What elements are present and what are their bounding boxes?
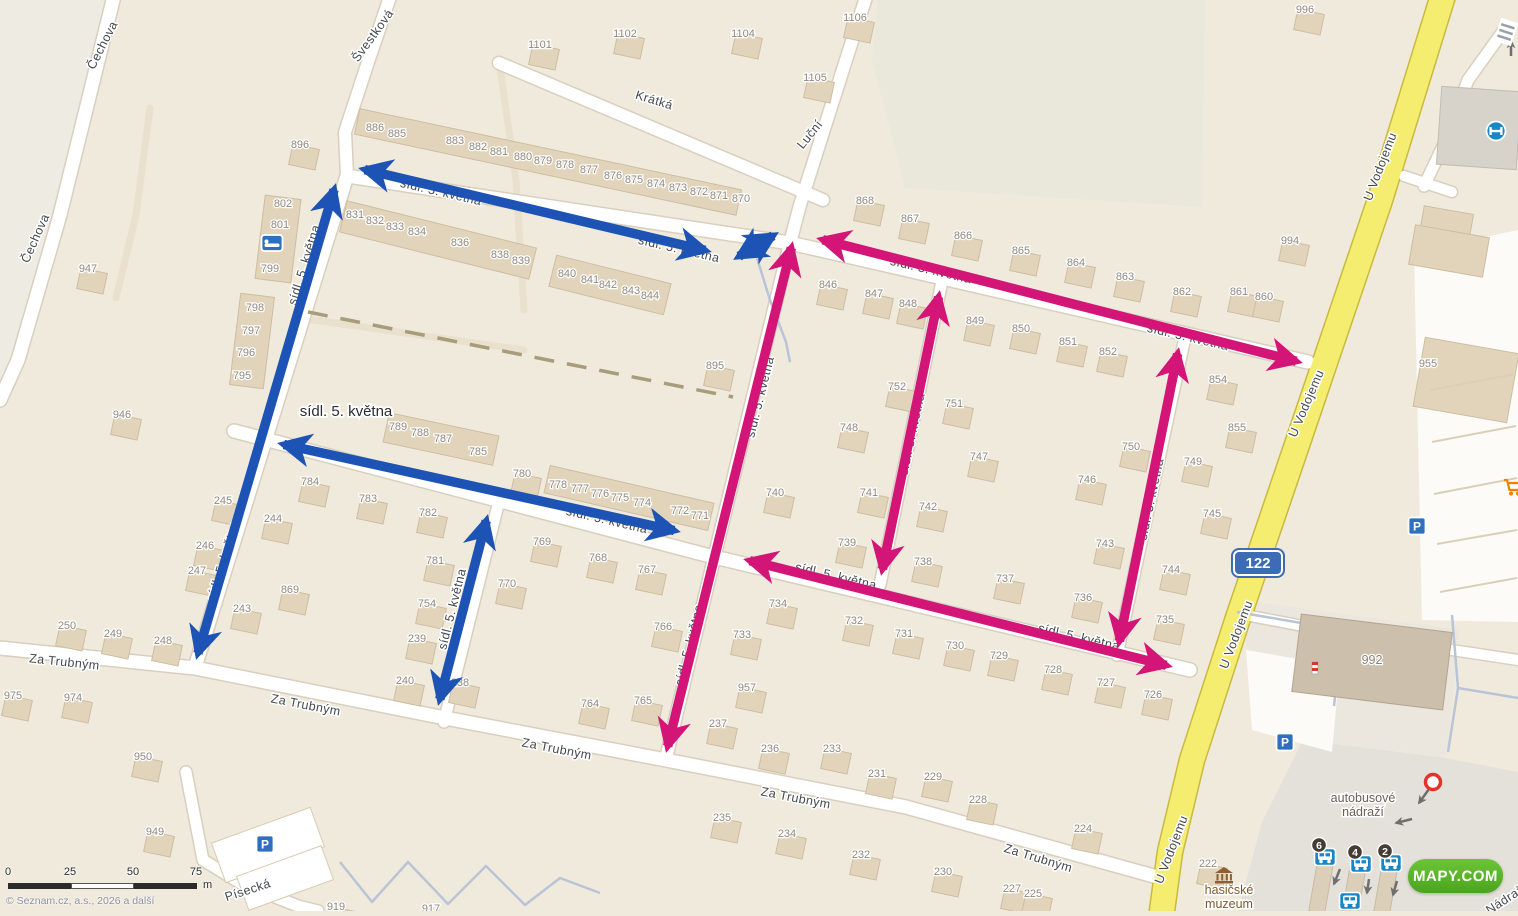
platform-number: 6	[1316, 840, 1322, 852]
house-number: 851	[1059, 336, 1077, 348]
house-number: 243	[233, 603, 251, 615]
house-number: 832	[366, 215, 384, 227]
house-number: 734	[769, 598, 787, 610]
house-number: 744	[1162, 564, 1180, 576]
house-number: 919	[327, 901, 345, 911]
house-number: 831	[346, 209, 364, 221]
house-number: 741	[860, 487, 878, 499]
house-number: 229	[924, 771, 942, 783]
sport-weight	[1500, 127, 1502, 135]
house-number: 1106	[843, 12, 867, 24]
house-number: 250	[58, 620, 76, 632]
house-number: 227	[1003, 883, 1021, 895]
house-number: 767	[638, 564, 656, 576]
house-number: 855	[1228, 422, 1246, 434]
parking-icon[interactable]: P	[1409, 518, 1426, 535]
house-number: 732	[845, 615, 863, 627]
house-number: 955	[1419, 358, 1437, 370]
scale-unit: m	[203, 879, 212, 891]
house-number: 842	[599, 279, 617, 291]
area-label: muzeum	[1205, 897, 1253, 911]
area-lot-east	[1414, 230, 1518, 622]
area-label: nádraží	[1342, 805, 1384, 819]
bus-window	[1326, 853, 1331, 856]
bus-wheel	[1385, 866, 1389, 870]
house-number: 882	[469, 141, 487, 153]
parking-icon[interactable]: P	[257, 836, 274, 853]
house-number: 771	[691, 510, 709, 522]
house-number: 764	[581, 698, 599, 710]
house-number: 864	[1067, 257, 1085, 269]
house-number: 996	[1296, 4, 1314, 16]
house-number: 975	[4, 690, 22, 702]
house-number: 246	[196, 540, 214, 552]
chimney-stripe	[1312, 668, 1318, 671]
house-number: 751	[945, 398, 963, 410]
house-number: 848	[899, 298, 917, 310]
house-number: 239	[408, 633, 426, 645]
house-number: 780	[513, 468, 531, 480]
house-number: 224	[1074, 823, 1092, 835]
house-number: 846	[819, 279, 837, 291]
house-number: 730	[946, 640, 964, 652]
museum-column	[1230, 874, 1232, 881]
area-label: autobusové	[1331, 791, 1396, 805]
house-number: 785	[469, 446, 487, 458]
house-number: 836	[451, 237, 469, 249]
chimney-stripe	[1312, 662, 1318, 665]
house-number: 852	[1099, 346, 1117, 358]
house-number: 237	[709, 718, 727, 730]
bus-window	[1345, 897, 1350, 900]
museum-base	[1215, 881, 1233, 884]
house-number: 868	[856, 195, 874, 207]
house-number: 736	[1074, 592, 1092, 604]
museum-column	[1217, 874, 1219, 881]
cart-wheel	[1509, 492, 1513, 496]
copyright-attribution[interactable]: © Seznam.cz, a.s., 2026 a další	[6, 895, 154, 907]
house-number: 235	[713, 812, 731, 824]
scale-segment	[134, 883, 197, 889]
area-label: hasičské	[1205, 883, 1254, 897]
museum-column	[1221, 874, 1223, 881]
house-number: 743	[1096, 538, 1114, 550]
sport-weight	[1489, 127, 1491, 135]
house-number: 782	[419, 507, 437, 519]
bus-window	[1386, 859, 1391, 862]
house-number: 249	[104, 628, 122, 640]
house-number: 731	[895, 628, 913, 640]
house-number: 244	[264, 513, 282, 525]
parking-letter: P	[261, 838, 269, 852]
house-number: 238	[451, 677, 469, 689]
house-number: 796	[237, 347, 255, 359]
house-number: 735	[1156, 614, 1174, 626]
house-number: 863	[1116, 271, 1134, 283]
house-number: 770	[498, 578, 516, 590]
house-number: 895	[706, 360, 724, 372]
house-number: 748	[840, 422, 858, 434]
house-number: 222	[1199, 858, 1217, 870]
house-number: 783	[359, 493, 377, 505]
house-number: 1102	[613, 28, 637, 40]
house-number: 739	[838, 537, 856, 549]
platform-number: 2	[1382, 846, 1388, 858]
bus-stop-icon[interactable]	[1340, 893, 1361, 910]
house-number: 833	[386, 221, 404, 233]
chimney-icon[interactable]	[1312, 662, 1318, 674]
house-number: 754	[418, 598, 436, 610]
house-number: 854	[1209, 374, 1227, 386]
house-number: 752	[888, 381, 906, 393]
house-number: 872	[690, 186, 708, 198]
house-number: 1104	[731, 28, 755, 40]
house-number: 768	[589, 552, 607, 564]
house-number: 950	[134, 751, 152, 763]
house-number: 838	[491, 249, 509, 261]
house-number: 248	[154, 635, 172, 647]
house-number: 871	[710, 190, 728, 202]
road-number-badge: 122	[1233, 550, 1283, 576]
scale-segment	[71, 883, 134, 889]
house-number: 839	[512, 255, 530, 267]
house-number: 1105	[803, 72, 827, 84]
house-number: 750	[1122, 441, 1140, 453]
house-number: 877	[580, 164, 598, 176]
house-number: 843	[622, 285, 640, 297]
house-number: 775	[611, 492, 629, 504]
house-number: 886	[366, 122, 384, 134]
bus-wheel	[1319, 860, 1323, 864]
house-number: 957	[738, 682, 756, 694]
house-number: 749	[1184, 456, 1202, 468]
house-number: 994	[1281, 235, 1299, 247]
house-number: 874	[647, 178, 665, 190]
house-number: 772	[671, 505, 689, 517]
house-number: 742	[919, 501, 937, 513]
scale-tick: 50	[127, 866, 139, 878]
scale-tick: 75	[190, 866, 202, 878]
house-number: 230	[934, 866, 952, 878]
place-label: sídl. 5. května	[300, 403, 393, 420]
parking-letter: P	[1413, 520, 1421, 534]
house-number: 873	[669, 182, 687, 194]
house-number: 737	[996, 573, 1014, 585]
house-number: 896	[291, 139, 309, 151]
house-number: 917	[422, 903, 440, 911]
house-number: 840	[558, 268, 576, 280]
house-number: 849	[966, 315, 984, 327]
house-number: 234	[778, 828, 796, 840]
house-number: 232	[852, 849, 870, 861]
house-number: 798	[246, 302, 264, 314]
house-number: 801	[271, 219, 289, 231]
house-number: 225	[1024, 888, 1042, 900]
house-number: 866	[954, 230, 972, 242]
map-svg: ČechovaČechovaŠvestkováKrátkáLučnísídl. …	[0, 0, 1518, 911]
hotel-glyph	[262, 235, 283, 251]
bed-mattress	[265, 244, 280, 248]
house-number: 992	[1362, 653, 1383, 667]
house-number: 862	[1173, 286, 1191, 298]
house-number: 733	[733, 629, 751, 641]
house-number: 974	[64, 692, 82, 704]
bed-pillow	[265, 240, 269, 244]
house-number: 834	[408, 226, 426, 238]
house-number: 876	[604, 170, 622, 182]
house-number: 789	[389, 421, 407, 433]
house-number: 867	[901, 213, 919, 225]
house-number: 745	[1203, 508, 1221, 520]
house-number: 850	[1012, 323, 1030, 335]
bus-window	[1356, 860, 1361, 863]
bus-wheel	[1344, 904, 1348, 908]
house-number: 777	[571, 483, 589, 495]
house-number: 766	[654, 621, 672, 633]
house-number: 240	[396, 675, 414, 687]
bus-window	[1362, 860, 1367, 863]
bus-wheel	[1355, 867, 1359, 871]
house-number: 740	[766, 487, 784, 499]
red-ring	[1426, 775, 1441, 790]
red-circle-icon[interactable]	[1426, 775, 1441, 790]
house-number: 781	[426, 555, 444, 567]
house-number: 729	[990, 650, 1008, 662]
house-number: 247	[188, 565, 206, 577]
bus-wheel	[1393, 866, 1397, 870]
house-number: 880	[514, 151, 532, 163]
house-number: 946	[113, 409, 131, 421]
map-canvas[interactable]: ČechovaČechovaŠvestkováKrátkáLučnísídl. …	[0, 0, 1518, 911]
house-number: 778	[549, 479, 567, 491]
house-number: 787	[434, 433, 452, 445]
house-number: 738	[914, 556, 932, 568]
platform-number: 4	[1352, 847, 1358, 859]
house-number: 765	[634, 695, 652, 707]
house-number: 861	[1230, 286, 1248, 298]
scale-bar-segments	[8, 883, 197, 889]
bus-window	[1320, 853, 1325, 856]
area-field-pale	[872, 0, 1205, 207]
museum-column	[1226, 874, 1228, 881]
house-number: 802	[274, 198, 292, 210]
scale-segment	[8, 883, 71, 889]
scale-tick: 25	[64, 866, 76, 878]
mapy-logo[interactable]: MAPY.COM	[1407, 859, 1503, 893]
house-number: 949	[146, 826, 164, 838]
house-number: 776	[591, 488, 609, 500]
bus-wheel	[1363, 867, 1367, 871]
bus-window	[1351, 897, 1356, 900]
house-number: 885	[388, 128, 406, 140]
bus-wheel	[1352, 904, 1356, 908]
house-number: 788	[411, 427, 429, 439]
bus-wheel	[1327, 860, 1331, 864]
scale-tick: 0	[5, 866, 11, 878]
house-number: 784	[301, 476, 319, 488]
house-number: 245	[214, 495, 232, 507]
house-number: 947	[79, 263, 97, 275]
house-number: 747	[970, 451, 988, 463]
house-number: 847	[865, 288, 883, 300]
hotel-icon[interactable]	[262, 235, 283, 251]
house-number: 746	[1078, 474, 1096, 486]
house-number: 769	[533, 536, 551, 548]
house-number: 727	[1097, 677, 1115, 689]
house-number: 797	[242, 325, 260, 337]
house-number: 875	[625, 174, 643, 186]
house-number: 231	[868, 768, 886, 780]
house-number: 774	[633, 497, 651, 509]
parking-letter: P	[1281, 736, 1289, 750]
house-number: 860	[1255, 291, 1273, 303]
house-number: 881	[490, 146, 508, 158]
house-number: 726	[1144, 689, 1162, 701]
house-number: 228	[969, 794, 987, 806]
house-number: 799	[261, 263, 279, 275]
house-number: 869	[281, 584, 299, 596]
house-number: 879	[534, 155, 552, 167]
house-number: 865	[1012, 245, 1030, 257]
house-number: 795	[233, 370, 251, 382]
house-number: 728	[1044, 664, 1062, 676]
parking-icon[interactable]: P	[1277, 734, 1294, 751]
bus-window	[1392, 859, 1397, 862]
sport-icon[interactable]	[1487, 122, 1506, 141]
house-number: 883	[446, 135, 464, 147]
house-number: 233	[823, 743, 841, 755]
house-number: 236	[761, 743, 779, 755]
house-number: 1101	[528, 39, 552, 51]
house-number: 878	[556, 159, 574, 171]
house-number: 844	[641, 290, 659, 302]
house-number: 870	[732, 193, 750, 205]
house-number: 841	[581, 274, 599, 286]
